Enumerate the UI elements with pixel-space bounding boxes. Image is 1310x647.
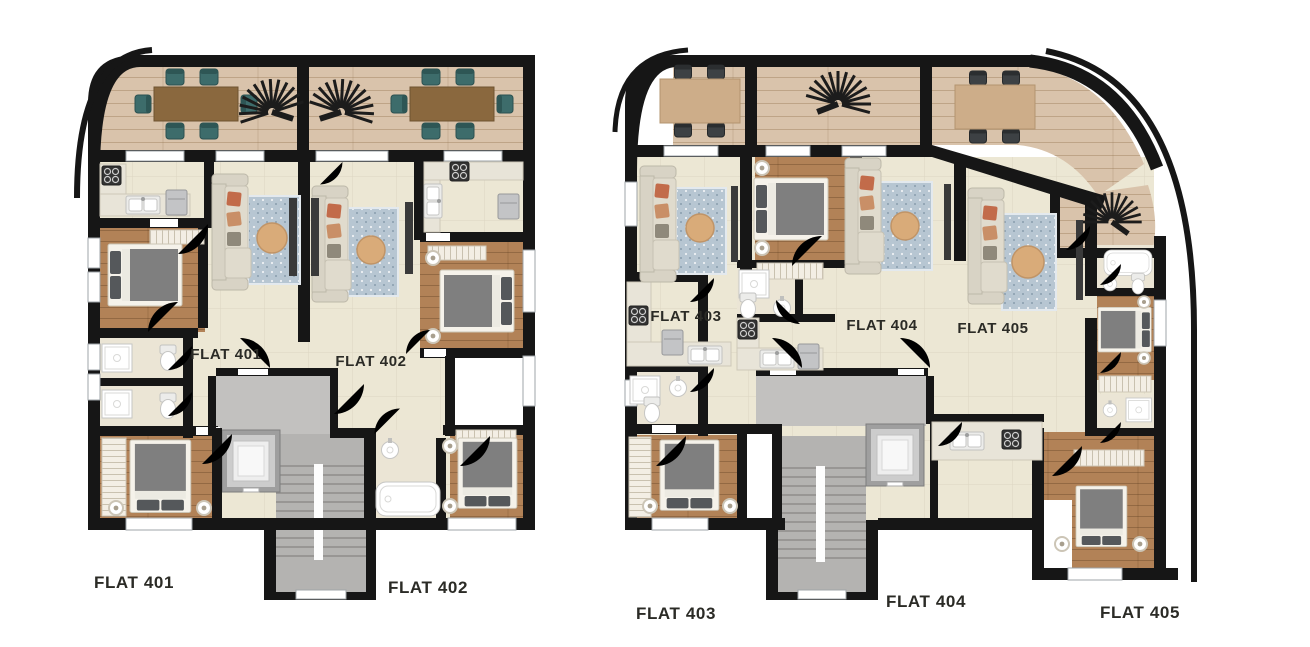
double-bed-icon (108, 244, 182, 306)
window (88, 344, 100, 370)
nightstand-icon (1055, 537, 1069, 551)
stove-icon (738, 320, 757, 339)
window (88, 272, 100, 302)
flat-402-inner-label: FLAT 402 (335, 353, 406, 370)
flat-403-outer-label: FLAT 403 (636, 604, 716, 623)
shower-icon (1126, 398, 1152, 422)
window (523, 356, 535, 406)
window (126, 518, 192, 530)
toilet-icon (740, 293, 756, 319)
terrace-divider-wall (745, 55, 757, 147)
bathtub-icon (376, 482, 440, 516)
nightstand-icon (443, 439, 457, 453)
flat-404-inner-label: FLAT 404 (846, 317, 917, 334)
shower-icon (102, 390, 132, 418)
elevator-icon (866, 424, 924, 486)
flat-401-inner-label: FLAT 401 (190, 346, 261, 363)
window (126, 151, 184, 161)
window (216, 151, 264, 161)
landing (756, 376, 926, 426)
wall (878, 518, 1034, 530)
fridge-icon (498, 194, 519, 219)
window (842, 146, 886, 156)
wardrobe (1099, 376, 1151, 392)
double-bed-icon (1076, 486, 1127, 547)
nightstand-icon (1138, 296, 1150, 308)
sofa-icon (968, 188, 1007, 304)
double-bed-icon (130, 440, 191, 513)
kitchen-sink-icon (424, 184, 442, 218)
flat-403-inner-label: FLAT 403 (650, 308, 721, 325)
stove-icon (102, 166, 121, 185)
double-bed-icon (660, 440, 719, 510)
light-well (1044, 500, 1072, 568)
flat-404-outer-label: FLAT 404 (886, 592, 966, 611)
tv-unit (731, 186, 738, 262)
tv-unit (311, 198, 319, 276)
wall (1154, 236, 1166, 580)
building-left: FLAT 401 FLAT 402 FLAT 401 FLAT 402 (77, 50, 535, 600)
nightstand-icon (723, 499, 737, 513)
flat-402-outer-label: FLAT 402 (388, 578, 468, 597)
nightstand-icon (755, 241, 769, 255)
fridge-icon (662, 330, 683, 355)
staircase (264, 434, 376, 600)
stair-door (296, 590, 346, 599)
stair-door (798, 590, 846, 599)
sofa-icon (845, 158, 884, 274)
double-bed-icon (440, 270, 514, 332)
window (1154, 300, 1166, 346)
window (664, 146, 718, 156)
sofa-icon (212, 174, 251, 290)
wardrobe (1074, 450, 1144, 466)
nightstand-icon (643, 499, 657, 513)
landing (216, 376, 330, 434)
coffee-table-icon (891, 212, 919, 240)
window (88, 374, 100, 400)
sofa-icon (640, 166, 679, 282)
window (766, 146, 810, 156)
window (625, 182, 637, 226)
flat-405-inner-label: FLAT 405 (957, 320, 1028, 337)
floor-plan-svg: FLAT 401 FLAT 402 FLAT 401 FLAT 402 (0, 0, 1310, 647)
light-well (747, 430, 772, 518)
shower-icon (102, 344, 132, 372)
fridge-icon (166, 190, 187, 215)
bathtub-icon (1104, 250, 1152, 276)
window (523, 250, 535, 312)
stove-icon (1002, 430, 1021, 449)
double-bed-icon (1098, 307, 1151, 352)
tv-unit (1076, 220, 1083, 300)
toilet-icon (644, 397, 660, 423)
floor-plan-canvas: FLAT 401 FLAT 402 FLAT 401 FLAT 402 (0, 0, 1310, 647)
stove-icon (450, 162, 469, 181)
window (88, 238, 100, 268)
kitchen-sink-icon (126, 196, 160, 214)
nightstand-icon (426, 251, 440, 265)
light-well (453, 358, 523, 426)
building-right: FLAT 403 FLAT 404 FLAT 405 FLAT 403 FLAT… (615, 50, 1194, 623)
toilet-icon (1132, 274, 1145, 294)
tv-unit (405, 202, 413, 274)
double-bed-icon (754, 178, 828, 240)
flat-405-bedroom-1-furniture (1098, 296, 1151, 392)
nightstand-icon (1138, 352, 1150, 364)
stove-icon (629, 306, 648, 325)
flat-405-outer-label: FLAT 405 (1100, 603, 1180, 622)
window (444, 151, 502, 161)
window (448, 518, 516, 530)
coffee-table-icon (257, 223, 287, 253)
coffee-table-icon (686, 214, 714, 242)
nightstand-icon (443, 499, 457, 513)
window (1068, 568, 1122, 580)
kitchen-sink-icon (688, 346, 722, 364)
window (316, 151, 388, 161)
tv-unit (944, 184, 951, 260)
flat-401-outer-label: FLAT 401 (94, 573, 174, 592)
coffee-table-icon (357, 236, 385, 264)
nightstand-icon (1133, 537, 1147, 551)
coffee-table-icon (1012, 246, 1044, 278)
tv-unit (289, 198, 297, 276)
nightstand-icon (197, 501, 211, 515)
double-bed-icon (458, 438, 517, 508)
terrace-divider-wall (920, 55, 932, 147)
nightstand-icon (109, 501, 123, 515)
nightstand-icon (755, 161, 769, 175)
window (652, 518, 708, 530)
